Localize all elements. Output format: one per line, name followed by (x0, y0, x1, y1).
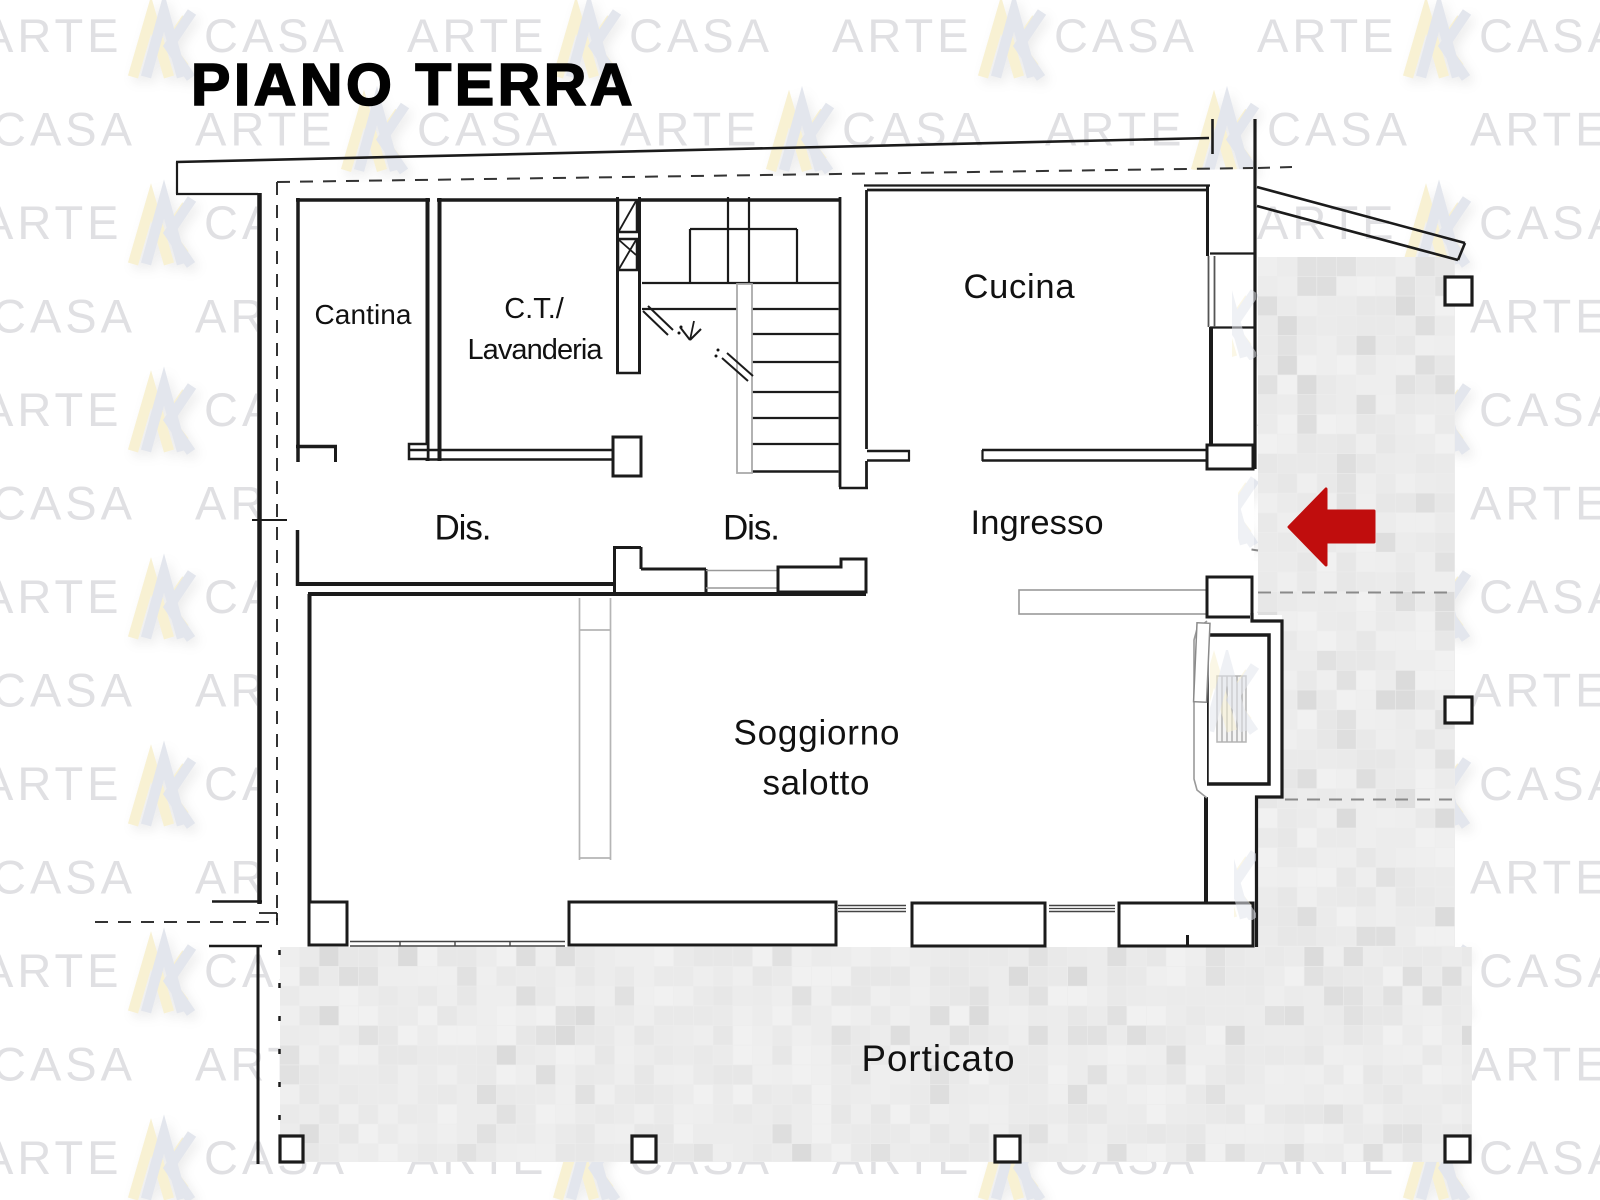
svg-text:ARTE: ARTE (1257, 9, 1398, 62)
svg-text:CASA: CASA (0, 664, 136, 717)
svg-text:salotto: salotto (763, 764, 870, 803)
svg-text:ARTE: ARTE (1045, 103, 1186, 156)
svg-text:ARTE: ARTE (0, 9, 123, 62)
svg-text:ARTE: ARTE (1257, 196, 1398, 249)
svg-text:CASA: CASA (1479, 757, 1600, 810)
svg-text:ARTE: ARTE (620, 103, 761, 156)
svg-text:ARTE: ARTE (1470, 103, 1600, 156)
svg-text:ARTE: ARTE (1470, 477, 1600, 530)
svg-text:Dis.: Dis. (435, 509, 492, 548)
svg-text:PIANO TERRA: PIANO TERRA (191, 52, 636, 118)
svg-text:ARTE: ARTE (0, 757, 123, 810)
svg-text:Lavanderia: Lavanderia (468, 334, 604, 366)
svg-text:CASA: CASA (1479, 383, 1600, 436)
svg-text:CASA: CASA (842, 103, 986, 156)
svg-text:ARTE: ARTE (0, 570, 123, 623)
svg-text:CASA: CASA (1479, 9, 1600, 62)
svg-text:ARTE: ARTE (0, 944, 123, 997)
svg-text:Ingresso: Ingresso (971, 504, 1104, 542)
svg-text:ARTE: ARTE (1470, 290, 1600, 343)
svg-text:CASA: CASA (1479, 944, 1600, 997)
svg-text:CASA: CASA (629, 9, 773, 62)
svg-text:C.T./: C.T./ (504, 293, 565, 325)
svg-text:ARTE: ARTE (1470, 851, 1600, 904)
svg-text:ARTE: ARTE (0, 1131, 123, 1184)
svg-text:ARTE: ARTE (0, 196, 123, 249)
svg-text:CASA: CASA (0, 477, 136, 530)
svg-text:CASA: CASA (1479, 196, 1600, 249)
svg-text:ARTE: ARTE (832, 9, 973, 62)
svg-text:ARTE: ARTE (1470, 1038, 1600, 1091)
svg-text:Dis.: Dis. (723, 509, 780, 548)
svg-text:ARTE: ARTE (0, 383, 123, 436)
svg-text:CASA: CASA (1054, 9, 1198, 62)
svg-text:CASA: CASA (0, 290, 136, 343)
svg-text:CASA: CASA (0, 103, 136, 156)
svg-text:CASA: CASA (0, 1038, 136, 1091)
svg-text:Cantina: Cantina (315, 299, 412, 330)
svg-text:ARTE: ARTE (1470, 664, 1600, 717)
svg-text:CASA: CASA (1479, 1131, 1600, 1184)
svg-text:CASA: CASA (1267, 103, 1411, 156)
svg-text:Porticato: Porticato (862, 1038, 1015, 1079)
svg-text:Cucina: Cucina (964, 268, 1076, 306)
svg-text:CASA: CASA (1479, 570, 1600, 623)
svg-text:CASA: CASA (0, 851, 136, 904)
svg-text:Soggiorno: Soggiorno (734, 714, 900, 753)
